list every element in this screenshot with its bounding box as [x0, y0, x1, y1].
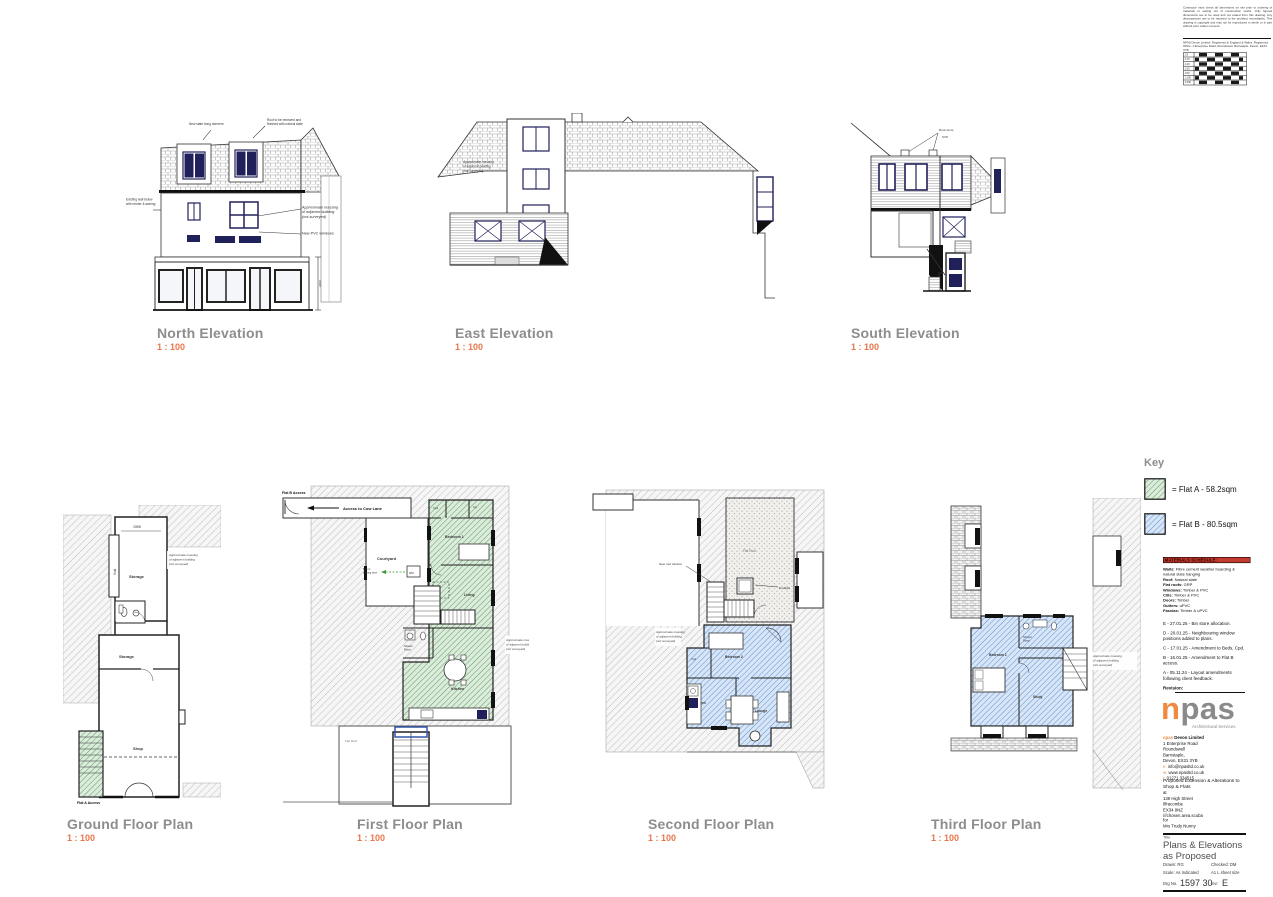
- svg-text:1:200: 1:200: [1185, 80, 1192, 84]
- north-elevation-scale: 1 : 100: [157, 342, 185, 352]
- second-floor-plan-title: Second Floor Plan: [648, 816, 774, 832]
- annotation-svp: SVP: [942, 135, 948, 139]
- notes-disclaimer: Contractor must check all dimensions on …: [1183, 6, 1272, 29]
- svg-text:finished with natural slate: finished with natural slate: [267, 122, 303, 126]
- flat-roof-area: Flat Roof: [283, 726, 511, 806]
- svg-text:1:20: 1:20: [1185, 62, 1191, 66]
- dim-label: 1595: [133, 525, 141, 529]
- annotation-rooflight: Rooflight: [779, 586, 790, 590]
- svg-text:Room: Room: [404, 648, 411, 652]
- room-label-kitchen: Kitchen: [451, 687, 464, 691]
- svg-text:(not surveyed): (not surveyed): [506, 647, 525, 651]
- materials-rows: Walls: Fibre cement weather boarding & n…: [1163, 567, 1247, 614]
- svg-text:Approximate massing: Approximate massing: [655, 630, 685, 634]
- svg-text:1:50: 1:50: [1185, 71, 1191, 75]
- svg-text:(not surveyed): (not surveyed): [169, 562, 188, 566]
- tb-checked: Checked: DM: [1211, 862, 1255, 867]
- ground-floor-plan-title: Ground Floor Plan: [67, 816, 193, 832]
- label-flat-a-access: Flat A Access: [77, 801, 100, 805]
- flat-b-swatch: [1144, 513, 1166, 535]
- flat-a-stair: [79, 731, 103, 797]
- room-label-bedroom1-third: Bedroom 1: [989, 653, 1007, 657]
- revision-item: E - 27.01.25 - Bin store allocation.: [1163, 621, 1249, 627]
- ground-floor-plan-drawing: 1595 Void Storage Storage Shop: [63, 505, 221, 807]
- tb-drg-number: 1597 30: [1180, 878, 1213, 888]
- annotation-vents: Roof vents: [939, 128, 954, 132]
- annotation-wall: Existing wall belowwith render & awning: [126, 198, 180, 206]
- south-elevation-title: South Elevation: [851, 325, 960, 341]
- dormer-window: [229, 142, 263, 182]
- east-elevation-scale: 1 : 100: [455, 342, 483, 352]
- room-label-cpd: Cpd: [433, 506, 439, 510]
- tb-rev-value: E: [1222, 878, 1228, 888]
- scale-bar-table: 1:5 1:10 1:20 1:25 1:50 1:100 1:200: [1183, 52, 1249, 86]
- label-flat-roof: Flat Roof: [345, 739, 357, 743]
- room-label-courtyard: Courtyard: [377, 556, 397, 561]
- site-block: at 139 High Street Ilfracombe EX34 9NZ /…: [1163, 790, 1248, 819]
- firm-details: npas Devon Limited 1 Enterprise Road Rou…: [1163, 735, 1248, 781]
- revision-list: E - 27.01.25 - Bin store allocation. D -…: [1163, 621, 1249, 691]
- annotation-new-rooflight: New roof window: [659, 562, 683, 566]
- key-flat-b-label: = Flat B - 80.5sqm: [1172, 520, 1238, 529]
- project-description: Proposed Extension & Alterations to Shop…: [1163, 778, 1251, 790]
- svg-text:1:10: 1:10: [1185, 57, 1191, 61]
- svg-text:1:5: 1:5: [1185, 53, 1189, 57]
- key-title: Key: [1144, 457, 1164, 469]
- ground-floor-plan-scale: 1 : 100: [67, 833, 95, 843]
- logo-tagline: Architectural Services: [1192, 724, 1247, 730]
- south-elevation-drawing: Roof vents SVP: [843, 113, 1008, 308]
- logo-letter-n: n: [1161, 691, 1180, 726]
- east-elevation-title: East Elevation: [455, 325, 554, 341]
- client-name: Mrs Trudy Nunny: [1163, 823, 1248, 829]
- third-floor-plan-scale: 1 : 100: [931, 833, 959, 843]
- revision-item: D - 20.01.25 - Neighbouring window posit…: [1163, 630, 1249, 642]
- room-label-void: Void: [113, 569, 117, 575]
- revision-item: A - 05.11.24 - Layout amendments followi…: [1163, 670, 1249, 682]
- svg-text:1:25: 1:25: [1185, 66, 1191, 70]
- first-floor-plan-drawing: Access to Cow Lane Flat B Access Courtya…: [281, 470, 529, 808]
- room-label-shop: Shop: [133, 746, 144, 751]
- svg-text:Shower: Shower: [404, 644, 413, 648]
- north-elevation-title: North Elevation: [157, 325, 263, 341]
- svg-text:existing store: existing store: [363, 572, 378, 575]
- svg-text:of adjacent building: of adjacent building: [463, 165, 491, 169]
- svg-text:1:100: 1:100: [1185, 76, 1192, 80]
- svg-text:(not surveyed): (not surveyed): [1093, 663, 1112, 667]
- svg-text:Approximate massing: Approximate massing: [462, 160, 494, 164]
- tb-sheet-size: A1 L sheet size: [1211, 870, 1259, 875]
- room-label-cpd2: Cpd: [691, 657, 697, 661]
- label-cow-lane: Access to Cow Lane: [343, 506, 383, 511]
- room-label-bedroom1: Bedroom 1: [445, 535, 464, 539]
- titleblock-divider-bottom: [1163, 890, 1246, 892]
- svg-text:(not surveyed): (not surveyed): [463, 169, 483, 173]
- flat-a-swatch: [1144, 478, 1166, 500]
- logo-letters-pas: pas: [1180, 691, 1235, 726]
- notes-company: NPAS Devon Limited. Registered in Englan…: [1183, 41, 1272, 52]
- svg-text:Approximate massing: Approximate massing: [505, 638, 529, 642]
- dim-label: 2400: [318, 280, 322, 287]
- tower: [507, 119, 565, 229]
- second-floor-plan-drawing: Flat Roof: [591, 470, 843, 808]
- weatherboard-annexe: [450, 213, 568, 265]
- third-floor-plan-title: Third Floor Plan: [931, 816, 1042, 832]
- tb-drawn: Drawn: RG: [1163, 862, 1207, 867]
- client-block: for Mrs Trudy Nunny: [1163, 817, 1248, 829]
- svg-text:of adjacent building: of adjacent building: [1093, 659, 1119, 663]
- dormer-window: [177, 144, 211, 184]
- svg-text:of adjacent building: of adjacent building: [656, 635, 682, 639]
- svg-text:WM: WM: [409, 571, 414, 575]
- svg-text:Approximate massing: Approximate massing: [1092, 654, 1122, 658]
- first-floor-plan-title: First Floor Plan: [357, 816, 463, 832]
- east-elevation-drawing: Approximate massing of adjacent building…: [435, 113, 775, 313]
- notes-divider: [1183, 38, 1271, 39]
- room-label-cyl: Cyl: [473, 505, 477, 509]
- washing-machine: WM: [407, 566, 420, 577]
- room-label-living: Living: [464, 593, 475, 597]
- svg-text:Shower: Shower: [1023, 635, 1032, 639]
- annotation-massing-north: Approximate massingof adjacent building(…: [302, 205, 354, 220]
- room-label-storage1: Storage: [129, 574, 145, 579]
- key-flat-a-label: = Flat A - 58.2sqm: [1172, 485, 1237, 494]
- room-label-study: Study: [1033, 695, 1043, 699]
- svg-text:(not surveyed): (not surveyed): [656, 639, 675, 643]
- svg-text:Room: Room: [1023, 639, 1030, 643]
- annotation-pvc-windows: New PVC windows: [302, 231, 354, 236]
- svg-text:of adjacent building: of adjacent building: [169, 558, 195, 562]
- first-floor-plan-scale: 1 : 100: [357, 833, 385, 843]
- revision-item: C - 17.01.25 - Amendment to Beds, Cpd.: [1163, 646, 1249, 652]
- stairs: [1063, 648, 1087, 690]
- svg-text:Approximate massing: Approximate massing: [168, 553, 198, 557]
- annotation-dormers: New slate hung dormers: [189, 122, 224, 126]
- drawing-sheet: Contractor must check all dimensions on …: [0, 0, 1273, 897]
- tb-scale: Scale: As Indicated: [1163, 870, 1211, 875]
- second-floor-plan-scale: 1 : 100: [648, 833, 676, 843]
- sheet-title: Plans & Elevationsas Proposed: [1163, 841, 1242, 863]
- npas-logo: npas: [1161, 693, 1235, 724]
- svg-text:of adjacent building: of adjacent building: [506, 643, 529, 647]
- revision-item: B - 16.01.25 - Amendment to Flat B acces…: [1163, 655, 1249, 667]
- south-elevation-scale: 1 : 100: [851, 342, 879, 352]
- third-floor-plan-drawing: Bedroom 1 Shower Room Study Approximate …: [923, 498, 1141, 796]
- room-label-bedroom2: Bedroom 2: [725, 655, 743, 659]
- svg-text:Flat Roof: Flat Roof: [743, 549, 756, 553]
- label-flat-b-access: Flat B Access: [282, 491, 305, 495]
- materials-schedule-title: MATERIALS SCHEDULE:: [1163, 557, 1250, 563]
- room-label-storage2: Storage: [119, 654, 135, 659]
- right-wing: [753, 171, 775, 298]
